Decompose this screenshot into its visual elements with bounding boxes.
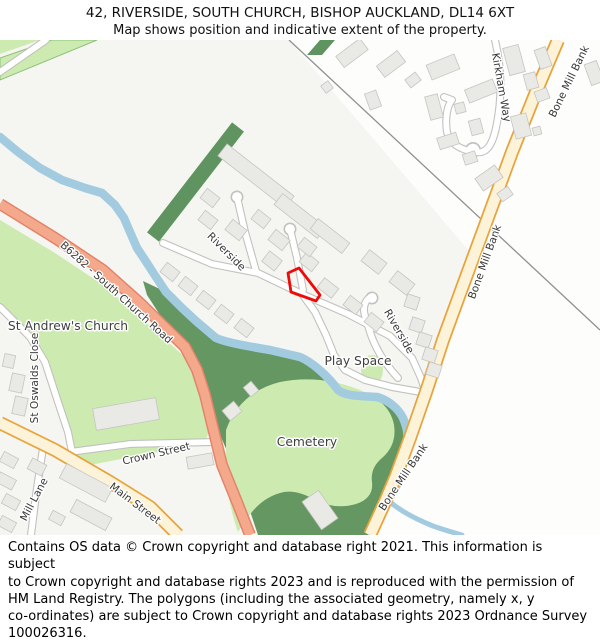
label-cemetery: Cemetery: [277, 435, 337, 449]
label-st-andrews-church: St Andrew's Church: [8, 319, 128, 333]
header: 42, RIVERSIDE, SOUTH CHURCH, BISHOP AUCK…: [0, 0, 600, 40]
map-canvas: St Andrew's Church Cemetery Play Space R…: [0, 40, 600, 535]
building: [2, 353, 15, 368]
property-map: St Andrew's Church Cemetery Play Space R…: [0, 40, 600, 535]
copyright-line: 100026316.: [8, 625, 592, 642]
copyright-line: HM Land Registry. The polygons (includin…: [8, 591, 592, 608]
label-st-oswalds-close: St Oswalds Close: [29, 333, 41, 424]
building: [454, 102, 466, 114]
copyright-line: Contains OS data © Crown copyright and d…: [8, 539, 592, 574]
copyright-notice: Contains OS data © Crown copyright and d…: [0, 535, 600, 643]
copyright-line: co-ordinates) are subject to Crown copyr…: [8, 608, 592, 625]
page-title: 42, RIVERSIDE, SOUTH CHURCH, BISHOP AUCK…: [0, 0, 600, 22]
label-play-space: Play Space: [324, 354, 391, 368]
copyright-line: to Crown copyright and database rights 2…: [8, 574, 592, 591]
building: [532, 126, 542, 136]
page-subtitle: Map shows position and indicative extent…: [0, 22, 600, 39]
